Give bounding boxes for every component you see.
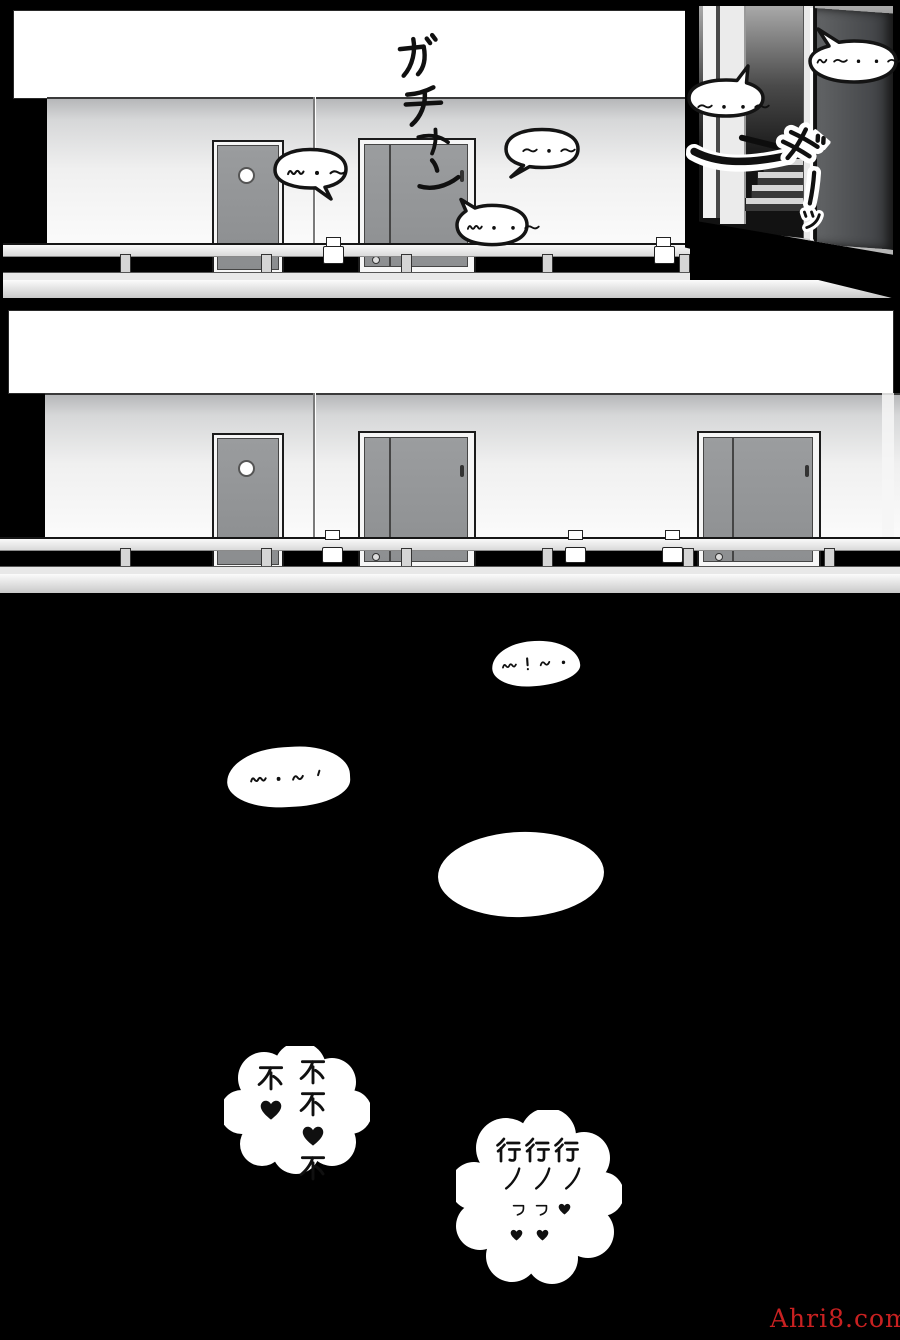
watermark: Ahri8.com (770, 1304, 898, 1333)
door-keyhole-icon (372, 553, 380, 561)
thought-cloud-no (224, 1046, 370, 1176)
railing-nameplate (662, 547, 683, 563)
door-handle-icon (460, 465, 464, 477)
door-handle-icon (805, 465, 809, 477)
railing-tab (325, 530, 340, 540)
dark-bubble-mid (226, 744, 352, 810)
manga-page: Ahri8.com (0, 0, 900, 1340)
cloud-text-col-left (256, 1062, 286, 1124)
bubble-squiggle (814, 52, 900, 69)
railing-nameplate (654, 246, 675, 264)
door-keyhole-icon (715, 553, 723, 561)
cloud-text-line4 (508, 1226, 551, 1243)
sfx-door-slam-char1 (392, 31, 443, 82)
railing-tab (568, 530, 583, 540)
dark-bubble-top (491, 638, 582, 689)
cloud-shape (224, 1046, 370, 1176)
cloud-text-col-right (298, 1056, 328, 1182)
panel2-railing-top (0, 537, 900, 551)
railing-nameplate (323, 246, 344, 264)
panel1-ceiling (13, 10, 689, 99)
dark-bubble-blank (437, 829, 606, 920)
bubble-squiggle (466, 218, 541, 236)
bubble-squiggle (696, 97, 771, 115)
bubble-squiggle (286, 162, 348, 182)
speech-bubble-inset-left (676, 60, 776, 132)
peephole-icon (238, 167, 255, 184)
cloud-text-line2 (502, 1166, 587, 1191)
panel2-wall-seam (313, 393, 315, 537)
panel2-walkway-floor (0, 574, 900, 595)
railing-tab (665, 530, 680, 540)
peephole-icon (238, 460, 255, 477)
panel2-wall-highlight (882, 393, 894, 537)
panel1-railing-top (3, 243, 690, 257)
bubble-squiggle (521, 141, 577, 159)
panel2-ceiling (8, 310, 894, 394)
bubble-squiggle (249, 765, 329, 788)
cloud-text-line1 (494, 1136, 580, 1164)
bubble-squiggle (500, 653, 572, 675)
railing-nameplate (565, 547, 586, 563)
thought-cloud-ok (456, 1110, 622, 1286)
cloud-text-line3 (510, 1200, 573, 1217)
door-keyhole-icon (372, 256, 380, 264)
panel1-walkway-floor (3, 280, 900, 300)
railing-nameplate (322, 547, 343, 563)
